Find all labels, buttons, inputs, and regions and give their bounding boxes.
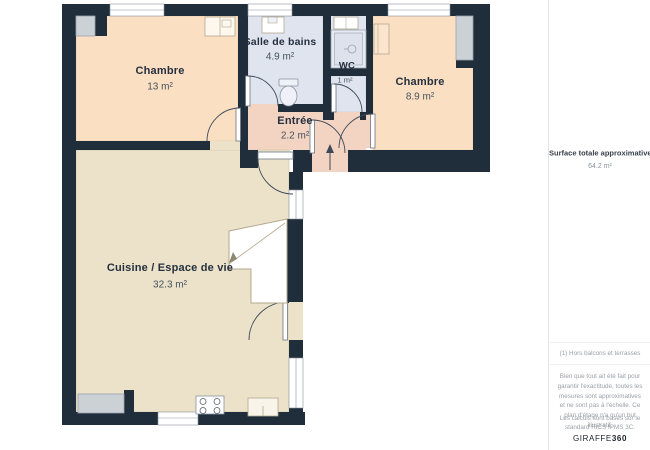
window bbox=[158, 412, 198, 425]
room-area-salle-de-bains: 4.9 m² bbox=[266, 52, 294, 63]
toilet bbox=[279, 79, 298, 86]
floorplan-page: Chambre 13 m² Salle de bains 4.9 m² WC 1… bbox=[0, 0, 650, 450]
door-leaf bbox=[246, 76, 251, 106]
room-area-wc: 1 m² bbox=[338, 76, 353, 85]
total-surface-label: Surface totale approximative(1) bbox=[549, 148, 650, 158]
brand-logo: GIRAFFE360 bbox=[549, 434, 650, 443]
summary-sidebar: Surface totale approximative(1) 64.2 m² … bbox=[548, 0, 650, 450]
door-leaf bbox=[371, 114, 376, 148]
total-surface-block: Surface totale approximative(1) 64.2 m² bbox=[549, 148, 650, 170]
doorway-chambre-1 bbox=[210, 141, 240, 150]
door-leaf bbox=[258, 152, 293, 159]
room-label-salle-de-bains: Salle de bains bbox=[244, 36, 317, 48]
room-label-chambre-1: Chambre bbox=[135, 65, 184, 77]
room-label-chambre-2: Chambre bbox=[395, 76, 444, 88]
room-label-cuisine: Cuisine / Espace de vie bbox=[107, 262, 233, 274]
total-surface-value: 64.2 m² bbox=[549, 163, 650, 170]
desk bbox=[374, 24, 389, 54]
wardrobe bbox=[456, 16, 473, 60]
door-leaf bbox=[332, 84, 337, 112]
standard-note: Les calculs sont basés sur le standard R… bbox=[549, 414, 650, 433]
kitchen-counter bbox=[78, 394, 124, 413]
footnote-text: (1) Hors balcons et terrasses bbox=[549, 342, 650, 365]
door-leaf bbox=[236, 108, 241, 141]
closet-block bbox=[76, 16, 95, 36]
doorway-salle-de-bains bbox=[248, 104, 278, 112]
room-label-entree: Entrée bbox=[277, 115, 312, 127]
room-area-chambre-1: 13 m² bbox=[147, 82, 173, 93]
room-area-chambre-2: 8.9 m² bbox=[406, 92, 434, 103]
room-area-entree: 2.2 m² bbox=[281, 131, 309, 142]
door-leaf bbox=[283, 302, 288, 340]
room-label-wc: WC bbox=[339, 61, 355, 72]
room-area-cuisine: 32.3 m² bbox=[153, 280, 187, 291]
brand-name: GIRAFFE bbox=[573, 434, 612, 443]
brand-suffix: 360 bbox=[612, 434, 627, 443]
doorway-stairs bbox=[289, 302, 303, 340]
